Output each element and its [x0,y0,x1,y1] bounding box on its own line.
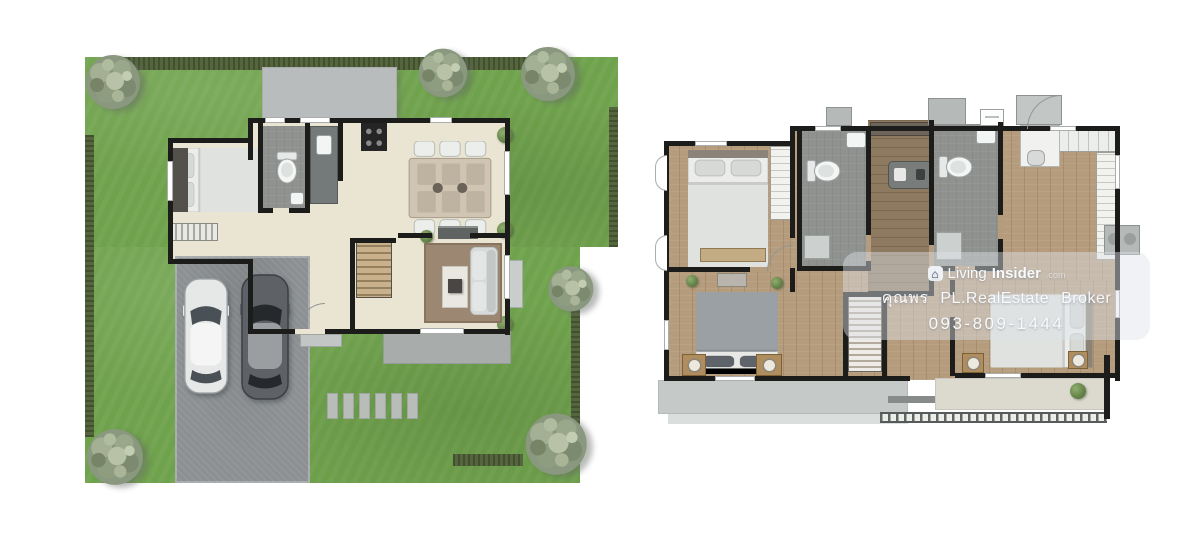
tree-icon [415,45,469,99]
hedge-right-upper [609,107,618,247]
brand-suffix: Insider [992,265,1041,282]
hedge-bottom-right [453,454,523,466]
window [1115,155,1120,189]
washbasin [290,192,304,205]
sofa [470,247,498,315]
wall [248,118,510,123]
brand-prefix: Living [948,265,987,282]
watermark-brand: ⌂ Living Insider .com [843,265,1150,282]
stepping-stone [375,393,386,419]
wall [168,138,253,143]
toilet-icon [274,151,300,185]
plant-pot [686,275,698,287]
stepping-stone [359,393,370,419]
plant-pot [771,277,783,289]
toilet-icon [938,152,974,182]
balcony-roof-slab [658,380,908,414]
hedge-left [85,135,94,437]
tree-icon [82,51,142,111]
low-cabinet [170,223,218,241]
ac-unit-icon [826,107,852,126]
wall [248,259,253,334]
side-step [509,260,523,308]
window [985,373,1021,378]
balcony-railing [880,412,1107,423]
front-door-opening [295,329,325,334]
bay-window [655,235,667,271]
canopy-roof [262,67,397,120]
floorplan-image: ⌂ Living Insider .com คุณพร PL.RealEstat… [0,0,1200,534]
watermark-agent-line: คุณพร PL.RealEstate Broker [843,286,1150,311]
wall [398,233,432,238]
coffee-table [448,279,462,293]
nightstand-lamp [682,354,706,376]
kitchen-sink [316,135,332,155]
wall [998,122,1003,271]
wardrobe [171,148,188,212]
wall [258,123,263,213]
slab-edge [668,414,908,424]
wall [797,126,802,271]
plant-pot [1070,383,1086,399]
stepping-stone [407,393,418,419]
staircase [356,240,392,298]
stove [361,123,387,151]
watermark-overlay: ⌂ Living Insider .com คุณพร PL.RealEstat… [843,252,1150,340]
door-opening [998,215,1003,239]
desk-chair [1027,150,1045,166]
window [695,141,727,146]
car-white [183,273,229,399]
wall [664,141,795,146]
ac-unit-icon [1104,225,1140,255]
window [167,161,173,201]
wall [790,146,795,238]
window [504,255,510,299]
brand-tld: .com [1046,270,1066,280]
entry-stoop [300,334,342,347]
wall [305,123,310,213]
wall [168,259,253,264]
window [715,376,755,381]
nightstand-lamp [756,354,782,376]
washbasin [846,132,866,148]
tree-icon [517,43,577,103]
wall [168,138,173,264]
window [664,320,669,350]
stepping-stone [327,393,338,419]
livinginsider-logo-icon: ⌂ [928,266,943,281]
nightstand-lamp [1068,351,1088,369]
watermark-phone: 093-809-1444 [843,314,1150,334]
terrace [383,331,511,364]
window [300,117,330,123]
bay-window [655,155,667,191]
tree-icon [521,409,589,477]
shower-tray [804,235,830,259]
wall [1104,355,1110,419]
wall [955,373,1120,378]
window [430,117,452,123]
wardrobe [770,146,792,220]
wall [664,376,910,381]
wall [338,123,343,181]
second-floor-plan: ⌂ Living Insider .com คุณพร PL.RealEstat… [655,95,1150,470]
tree-icon [545,263,595,313]
bathroom-door-opening [273,208,289,213]
wall [350,238,355,334]
tree-icon [83,425,145,487]
stepping-stone [391,393,402,419]
bed-double [176,148,258,212]
closet-island [888,161,932,189]
window [815,126,841,131]
wall [790,126,795,146]
tv-dresser [717,273,747,287]
wall [350,238,396,243]
ground-floor-plan [85,57,618,483]
stepping-stone [343,393,354,419]
dresser [700,248,766,262]
toilet-icon [806,156,842,186]
wall [470,233,510,238]
window [265,117,285,123]
window [420,328,464,334]
dining-set [407,141,493,235]
window [504,151,510,195]
nightstand-lamp [962,353,984,373]
